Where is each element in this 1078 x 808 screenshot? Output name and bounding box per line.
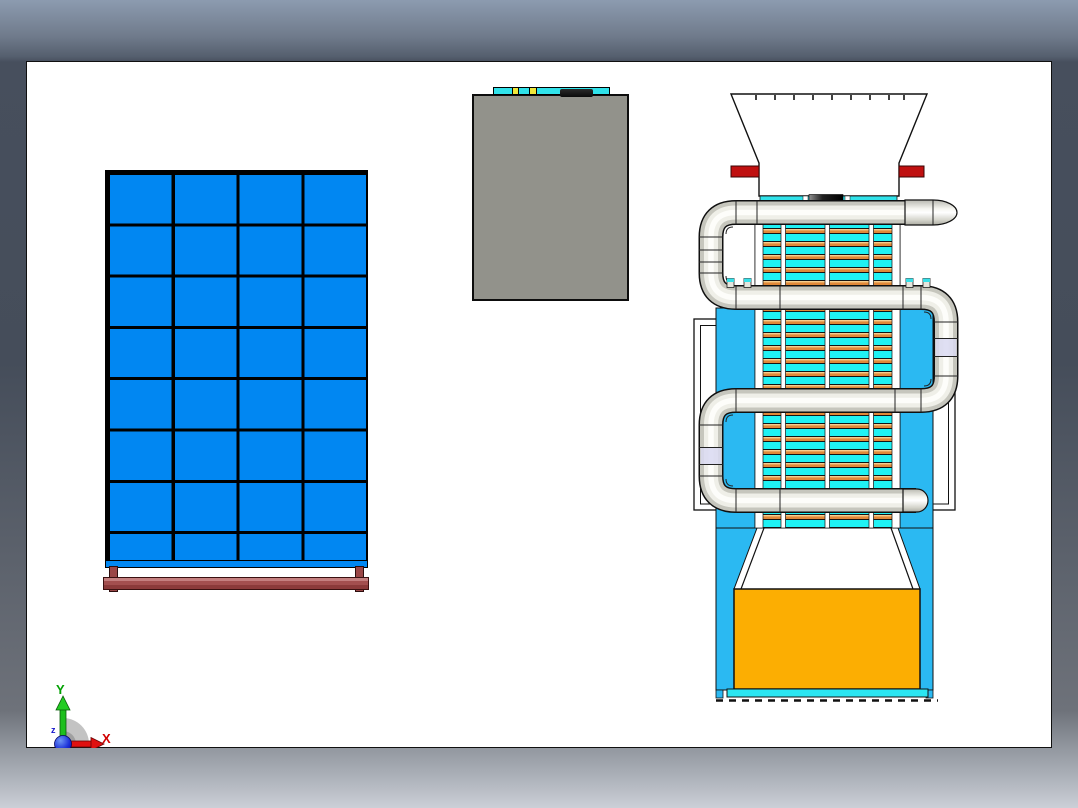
stand-beam-highlight <box>104 578 368 581</box>
base-strip[interactable] <box>727 689 928 697</box>
pipe-sleeve <box>936 339 957 357</box>
blue-grid-panel[interactable] <box>105 170 368 562</box>
pipe-cap-top[interactable] <box>905 200 957 225</box>
gray-box-black-bar[interactable] <box>560 89 593 97</box>
hopper[interactable] <box>731 94 927 204</box>
panel-bottom-strip[interactable] <box>105 560 368 568</box>
discharge-chute <box>741 528 913 589</box>
yellow-insert <box>529 88 537 94</box>
z-axis-label: z <box>51 724 56 737</box>
yellow-insert <box>512 88 519 94</box>
gray-box[interactable] <box>472 94 629 301</box>
stand-beam-shadow <box>104 585 368 589</box>
tube-bundle[interactable] <box>755 223 900 529</box>
red-clamp-left[interactable] <box>731 166 759 177</box>
machine-assembly[interactable] <box>690 85 990 707</box>
x-axis-label: X <box>102 732 111 745</box>
red-clamp-right[interactable] <box>899 166 924 177</box>
pipe-sleeve <box>701 448 722 465</box>
viewport-background: Y X z <box>0 0 1078 808</box>
foot-left <box>716 690 723 698</box>
discharge-bin[interactable] <box>734 589 920 689</box>
pipe-cap-bottom[interactable] <box>903 489 928 512</box>
y-axis-label: Y <box>56 683 65 696</box>
stand-beam[interactable] <box>103 577 369 590</box>
